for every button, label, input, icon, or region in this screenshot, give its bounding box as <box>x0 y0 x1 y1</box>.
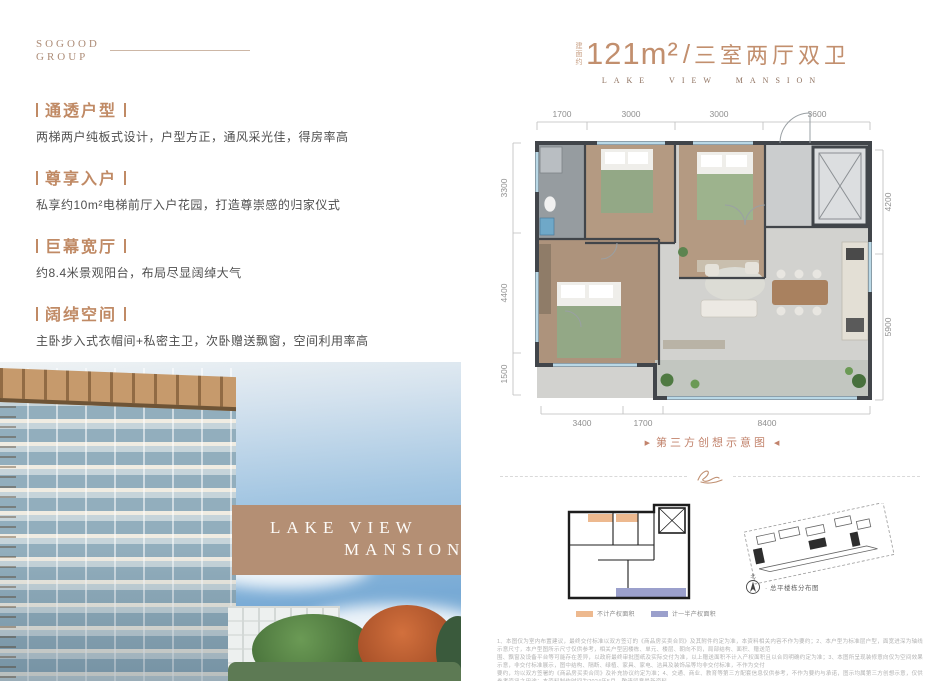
feature-item: 巨幕宽厅 约8.4米景观阳台，布局尽显阔绰大气 <box>36 238 476 281</box>
site-plan-label: · 总平楼栋分布图 <box>765 583 819 592</box>
balcony-highlight <box>616 588 686 598</box>
title-bar-icon <box>124 239 126 253</box>
entry-door-arc <box>780 113 810 143</box>
page: SOGOOD GROUP 通透户型 两梯两户纯板式设计，户型方正，通风采光佳，得… <box>0 0 927 681</box>
area-legend: 不计产权面积 计一半产权面积 <box>576 609 716 618</box>
title-bar-icon <box>124 171 126 185</box>
section-divider <box>500 468 920 484</box>
floor-plan: 1700 3000 3000 3600 3300 4400 1500 4200 … <box>497 92 927 432</box>
logo: SOGOOD GROUP <box>36 38 250 64</box>
plan-caption-text: 第三方创想示意图 <box>656 437 768 449</box>
wardrobe <box>539 244 551 314</box>
title-bar-icon <box>36 171 38 185</box>
dim-top-3: 3000 <box>710 109 729 119</box>
disclaimer-line: 围、飘窗及设备平台等可能存在差异，以政府最终审批图纸及实际交付为准，以上赠送面积… <box>497 654 923 670</box>
feature-item: 阔绰空间 主卧步入式衣帽间+私密主卫，次卧赠送飘窗，空间利用率高 <box>36 306 476 349</box>
right-triangle-icon: ▶ <box>645 440 650 447</box>
dim-bottom-1: 3400 <box>573 418 592 428</box>
plan-subtitle: LAKE VIEW MANSION <box>497 76 927 85</box>
dim-right-2: 5900 <box>883 317 893 336</box>
armchair <box>745 262 759 274</box>
feature-item: 通透户型 两梯两户纯板式设计，户型方正，通风采光佳，得房率高 <box>36 102 476 145</box>
stove <box>846 248 864 260</box>
residential-tower <box>0 368 236 681</box>
plan-caption: ▶第三方创想示意图◀ <box>497 434 927 450</box>
feature-title: 通透户型 <box>36 102 476 122</box>
compass-icon: 北 <box>747 573 760 594</box>
title-bar-icon <box>36 307 38 321</box>
dim-bottom-3: 8400 <box>758 418 777 428</box>
divider-dash <box>500 476 687 477</box>
building-photo: LAKE VIEW MANSION <box>0 362 461 681</box>
dim-left-3: 1500 <box>499 364 509 383</box>
disclaimer-line: 要约，均以双方签署的《商品房买卖合同》及补充协议约定为准；4、交通、商业、教育等… <box>497 670 923 681</box>
title-bar-icon <box>124 103 126 117</box>
plant <box>678 247 688 257</box>
dim-bottom-2: 1700 <box>634 418 653 428</box>
dim-top-1: 1700 <box>553 109 572 119</box>
feature-desc: 主卧步入式衣帽间+私密主卫，次卧赠送飘窗，空间利用率高 <box>36 333 476 349</box>
title-bar-icon <box>36 103 38 117</box>
dim-right-1: 4200 <box>883 192 893 211</box>
site-plan: 北 · 总平楼栋分布图 <box>733 503 913 603</box>
legend-item: 不计产权面积 <box>576 609 635 618</box>
site-boundary-group <box>744 503 894 584</box>
mini-schematic-plan <box>558 500 713 604</box>
mini-inner-walls <box>569 512 654 588</box>
feature-title: 巨幕宽厅 <box>36 238 476 258</box>
shower <box>540 147 562 173</box>
plan-title-row: 建面约 121m² / 三室两厅双卫 <box>574 36 850 72</box>
logo-rule <box>110 50 250 51</box>
feature-desc: 两梯两户纯板式设计，户型方正，通风采光佳，得房率高 <box>36 129 476 145</box>
logo-line2: GROUP <box>36 51 100 64</box>
feature-desc: 私享约10m²电梯前厅入户花园，打造尊崇感的归家仪式 <box>36 197 476 213</box>
area-value: 121m² <box>586 36 679 72</box>
disclaimer-line: 1、本图仅为室内布置建议，最终交付标准以双方签订的《商品房买卖合同》及其附件约定… <box>497 638 923 654</box>
feature-title-text: 尊享入户 <box>45 171 117 188</box>
plant <box>691 380 700 389</box>
purple-swatch-icon <box>651 611 668 617</box>
layout-text: 三室两厅双卫 <box>694 38 850 70</box>
feature-title: 阔绰空间 <box>36 306 476 326</box>
balcony-floor <box>655 360 870 398</box>
legend-label: 计一半产权面积 <box>672 609 716 618</box>
dim-left-2: 4400 <box>499 283 509 302</box>
plant <box>852 374 866 388</box>
feature-title: 尊享入户 <box>36 170 476 190</box>
left-triangle-icon: ◀ <box>774 440 779 447</box>
title-slash: / <box>683 39 690 70</box>
divider-dash <box>733 476 920 477</box>
plant <box>661 374 674 387</box>
project-name-band: LAKE VIEW MANSION <box>232 505 461 575</box>
podium-strip <box>759 544 877 574</box>
armchair <box>705 264 719 276</box>
disclaimer: 1、本图仅为室内布置建议，最终交付标准以双方签订的《商品房买卖合同》及其附件约定… <box>497 638 923 681</box>
feature-desc: 约8.4米景观阳台，布局尽显阔绰大气 <box>36 265 476 281</box>
area-prefix: 建面约 <box>574 41 583 67</box>
orange-swatch-icon <box>576 611 593 617</box>
facade-wood-accent <box>0 386 16 681</box>
dim-left-1: 3300 <box>499 178 509 197</box>
toilet <box>544 196 556 212</box>
project-name-line2: MANSION <box>232 538 461 560</box>
tv-console <box>663 340 725 349</box>
feature-title-text: 通透户型 <box>45 103 117 120</box>
calligraphy-glyph-icon <box>695 468 725 484</box>
kitchen-sink <box>846 318 864 332</box>
title-bar-icon <box>124 307 126 321</box>
compass-north-label: 北 <box>750 573 755 580</box>
legend-label: 不计产权面积 <box>597 609 635 618</box>
elevator-shaft <box>813 147 867 225</box>
facade-shade <box>0 550 236 681</box>
sofa <box>701 300 757 317</box>
feature-title-text: 阔绰空间 <box>45 307 117 324</box>
plant <box>845 367 853 375</box>
project-name-line1: LAKE VIEW <box>232 505 461 538</box>
bay-window-highlight <box>616 514 638 522</box>
title-bar-icon <box>36 239 38 253</box>
feature-title-text: 巨幕宽厅 <box>45 239 117 256</box>
feature-list: 通透户型 两梯两户纯板式设计，户型方正，通风采光佳，得房率高 尊享入户 私享约1… <box>36 102 476 374</box>
legend-item: 计一半产权面积 <box>651 609 716 618</box>
dining-table <box>772 280 828 305</box>
feature-item: 尊享入户 私享约10m²电梯前厅入户花园，打造尊崇感的归家仪式 <box>36 170 476 213</box>
logo-text: SOGOOD GROUP <box>36 38 100 64</box>
plan-title-block: 建面约 121m² / 三室两厅双卫 LAKE VIEW MANSION <box>497 36 927 85</box>
logo-line1: SOGOOD <box>36 38 100 51</box>
bush-row <box>228 662 461 681</box>
bay-window-highlight <box>588 514 613 522</box>
dim-top-2: 3000 <box>622 109 641 119</box>
sink <box>540 218 554 235</box>
